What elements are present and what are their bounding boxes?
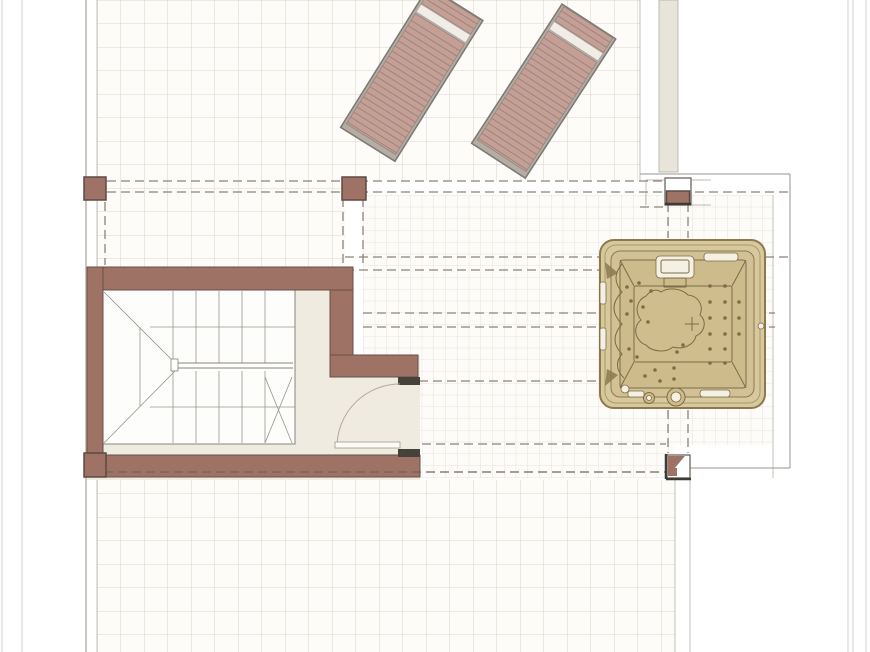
left-rim-notch-1: [600, 282, 606, 304]
drain-large-inner: [671, 392, 681, 402]
pillar-bottom-left: [84, 453, 106, 477]
right-rim-fitting: [758, 323, 764, 329]
upper-right-wall-strip: [659, 0, 678, 172]
lounge-seat-blob: [636, 289, 705, 351]
door-leaf: [335, 442, 400, 448]
pillar-top-left: [84, 177, 106, 200]
pillar-bottom-right: [666, 454, 691, 479]
bottom-rim-bar-right: [700, 390, 730, 397]
pillar-top-center: [342, 177, 366, 200]
bottom-rim-bar-left: [628, 391, 644, 397]
spa-control-bar: [704, 253, 738, 261]
roof-terrace-floor-plan: [0, 0, 870, 652]
drain-small-inner: [647, 396, 652, 401]
door-jamb-bottom: [398, 449, 420, 457]
stairwell-wall-wing: [330, 355, 418, 377]
door-jamb-top: [398, 377, 420, 385]
headrest-pillow: [656, 256, 694, 278]
hot-tub: [600, 240, 765, 408]
stairwell-wall-bottom: [87, 455, 420, 477]
fine-tile-grid-south: [422, 445, 675, 478]
stairwell-wall-left: [87, 267, 103, 457]
stairwell-wall-top: [87, 267, 353, 290]
floor-plan-canvas: [0, 0, 870, 652]
corner-fitting-circle: [621, 385, 629, 393]
stair-flight-box: [103, 290, 295, 444]
stairwell-wall-right-column: [330, 290, 353, 355]
left-rim-notch-2: [600, 328, 606, 350]
newel-post: [171, 359, 178, 371]
tile-grid-upper-left: [97, 181, 345, 268]
tile-grid-bottom: [97, 480, 675, 652]
